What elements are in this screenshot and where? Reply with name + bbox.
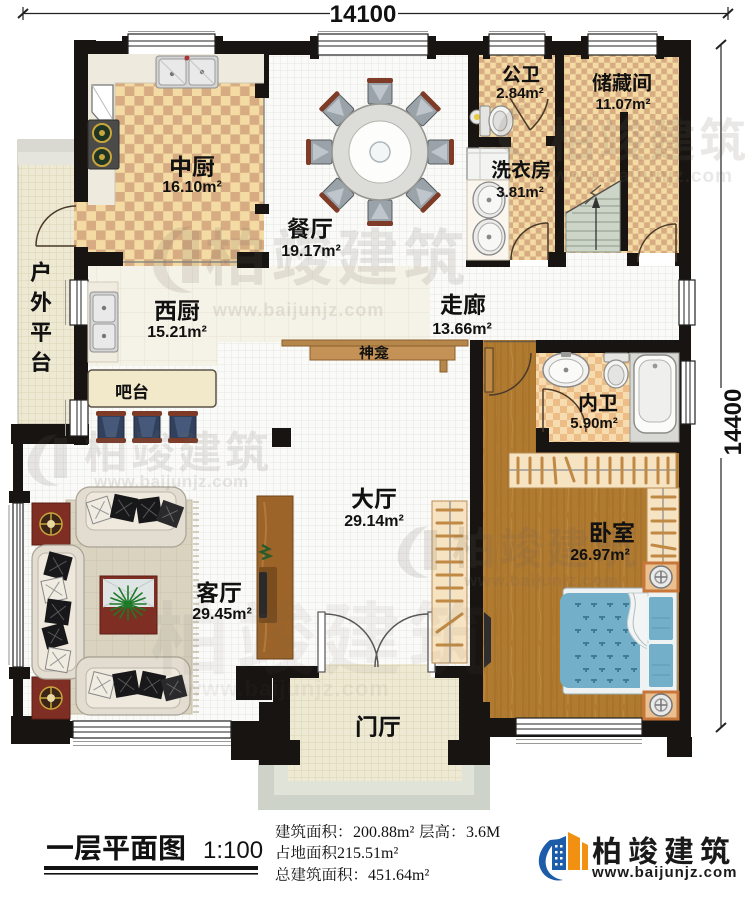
svg-text:215.51m²: 215.51m² [337,845,398,862]
svg-text:14100: 14100 [330,1,397,28]
svg-text:www.baijunjz.com: www.baijunjz.com [591,864,737,881]
svg-text:15.21m²: 15.21m² [147,324,207,341]
svg-text:26.97m²: 26.97m² [570,547,630,564]
svg-text:www.baijunjz.com: www.baijunjz.com [463,571,619,590]
svg-text:13.66m²: 13.66m² [432,321,492,338]
svg-text:5.90m²: 5.90m² [570,415,618,432]
svg-text:www.baijunjz.com: www.baijunjz.com [183,676,390,701]
svg-text:451.64m²: 451.64m² [368,867,429,884]
svg-text:14400: 14400 [720,389,747,456]
svg-text:www.baijunjz.com: www.baijunjz.com [552,166,733,187]
svg-text:2.84m²: 2.84m² [496,85,544,102]
svg-text:16.10m²: 16.10m² [162,179,222,196]
svg-text:3.81m²: 3.81m² [496,184,544,201]
svg-text:11.07m²: 11.07m² [595,96,650,113]
svg-text:29.45m²: 29.45m² [192,606,252,623]
svg-text:200.88m²: 200.88m² [353,824,414,841]
svg-text:19.17m²: 19.17m² [281,243,341,260]
svg-text:3.6M: 3.6M [466,824,500,841]
svg-text:www.baijunjz.com: www.baijunjz.com [93,472,249,491]
svg-text:29.14m²: 29.14m² [344,513,404,530]
svg-text:1:100: 1:100 [203,837,263,864]
svg-text:www.baijunjz.com: www.baijunjz.com [212,300,384,320]
